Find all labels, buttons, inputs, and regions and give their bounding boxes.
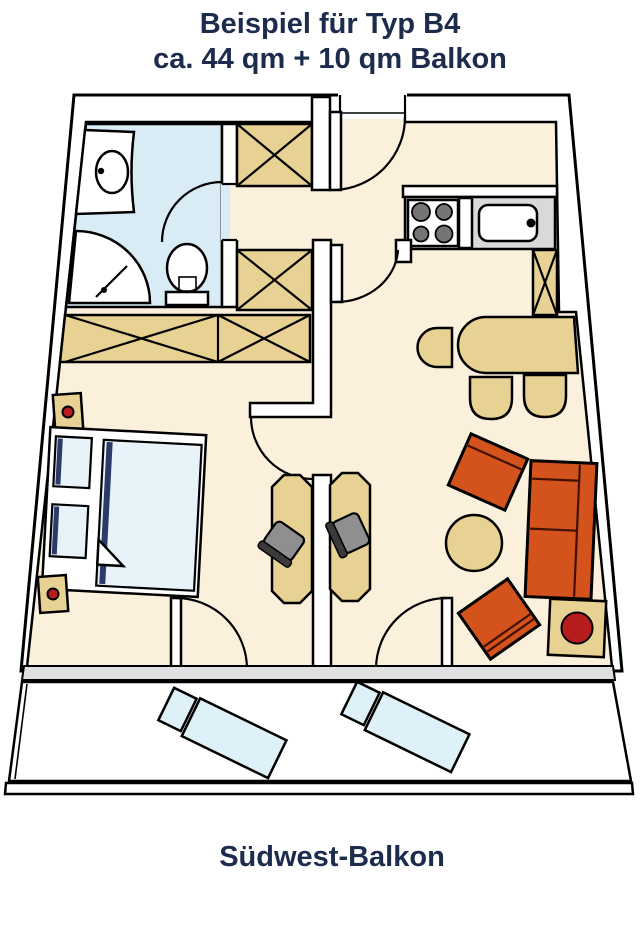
lamp-icon	[561, 612, 593, 644]
balcony-label: Südwest-Balkon	[219, 841, 445, 873]
title-line-1: Beispiel für Typ B4	[200, 8, 461, 40]
balcony-door-leaf-living	[442, 598, 452, 669]
window-front	[22, 666, 615, 680]
entry-door-leaf	[330, 112, 341, 190]
balcony-railing	[5, 783, 633, 794]
sink-faucet-icon	[98, 168, 104, 174]
partition-wall	[313, 475, 331, 668]
floor-plan: Beispiel für Typ B4 ca. 44 qm + 10 qm Ba…	[0, 0, 640, 939]
entry-wall-strip	[312, 97, 330, 190]
side-table	[548, 599, 606, 657]
dining-chair	[524, 375, 566, 417]
duvet	[96, 440, 202, 591]
kitchen-door-leaf	[331, 245, 342, 302]
balcony	[5, 680, 633, 794]
sofa	[525, 461, 597, 600]
burner-icon	[412, 203, 430, 221]
balcony-floor	[9, 682, 631, 781]
floor-plan-page: Beispiel für Typ B4 ca. 44 qm + 10 qm Ba…	[0, 0, 640, 939]
nightstand-top	[53, 393, 83, 431]
closet-upper	[237, 124, 312, 186]
double-bed	[42, 427, 206, 597]
dining-chair	[470, 377, 512, 419]
lamp-icon	[62, 406, 74, 418]
burner-icon	[414, 227, 429, 242]
dining-table	[458, 317, 578, 373]
title-line-2: ca. 44 qm + 10 qm Balkon	[153, 43, 507, 75]
dining-chair-left	[418, 328, 452, 367]
wardrobe-row	[60, 315, 310, 362]
balcony-door-leaf-bedroom	[171, 598, 181, 669]
kitchen-faucet-icon	[527, 219, 536, 228]
bathroom	[66, 124, 239, 307]
toilet-tank	[166, 292, 208, 305]
nightstand-bottom	[38, 575, 68, 613]
kitchen-back-wall	[403, 186, 557, 197]
toilet-bowl	[167, 244, 207, 292]
burner-icon	[436, 226, 453, 243]
coffee-table	[446, 515, 502, 571]
plan-title: Beispiel für Typ B4 ca. 44 qm + 10 qm Ba…	[153, 8, 507, 75]
lamp-icon	[47, 588, 59, 600]
shower-drain-icon	[101, 287, 107, 293]
closet-lower	[237, 250, 312, 310]
tall-cabinet	[533, 250, 557, 315]
counter-divider	[459, 198, 472, 248]
burner-icon	[436, 204, 452, 220]
